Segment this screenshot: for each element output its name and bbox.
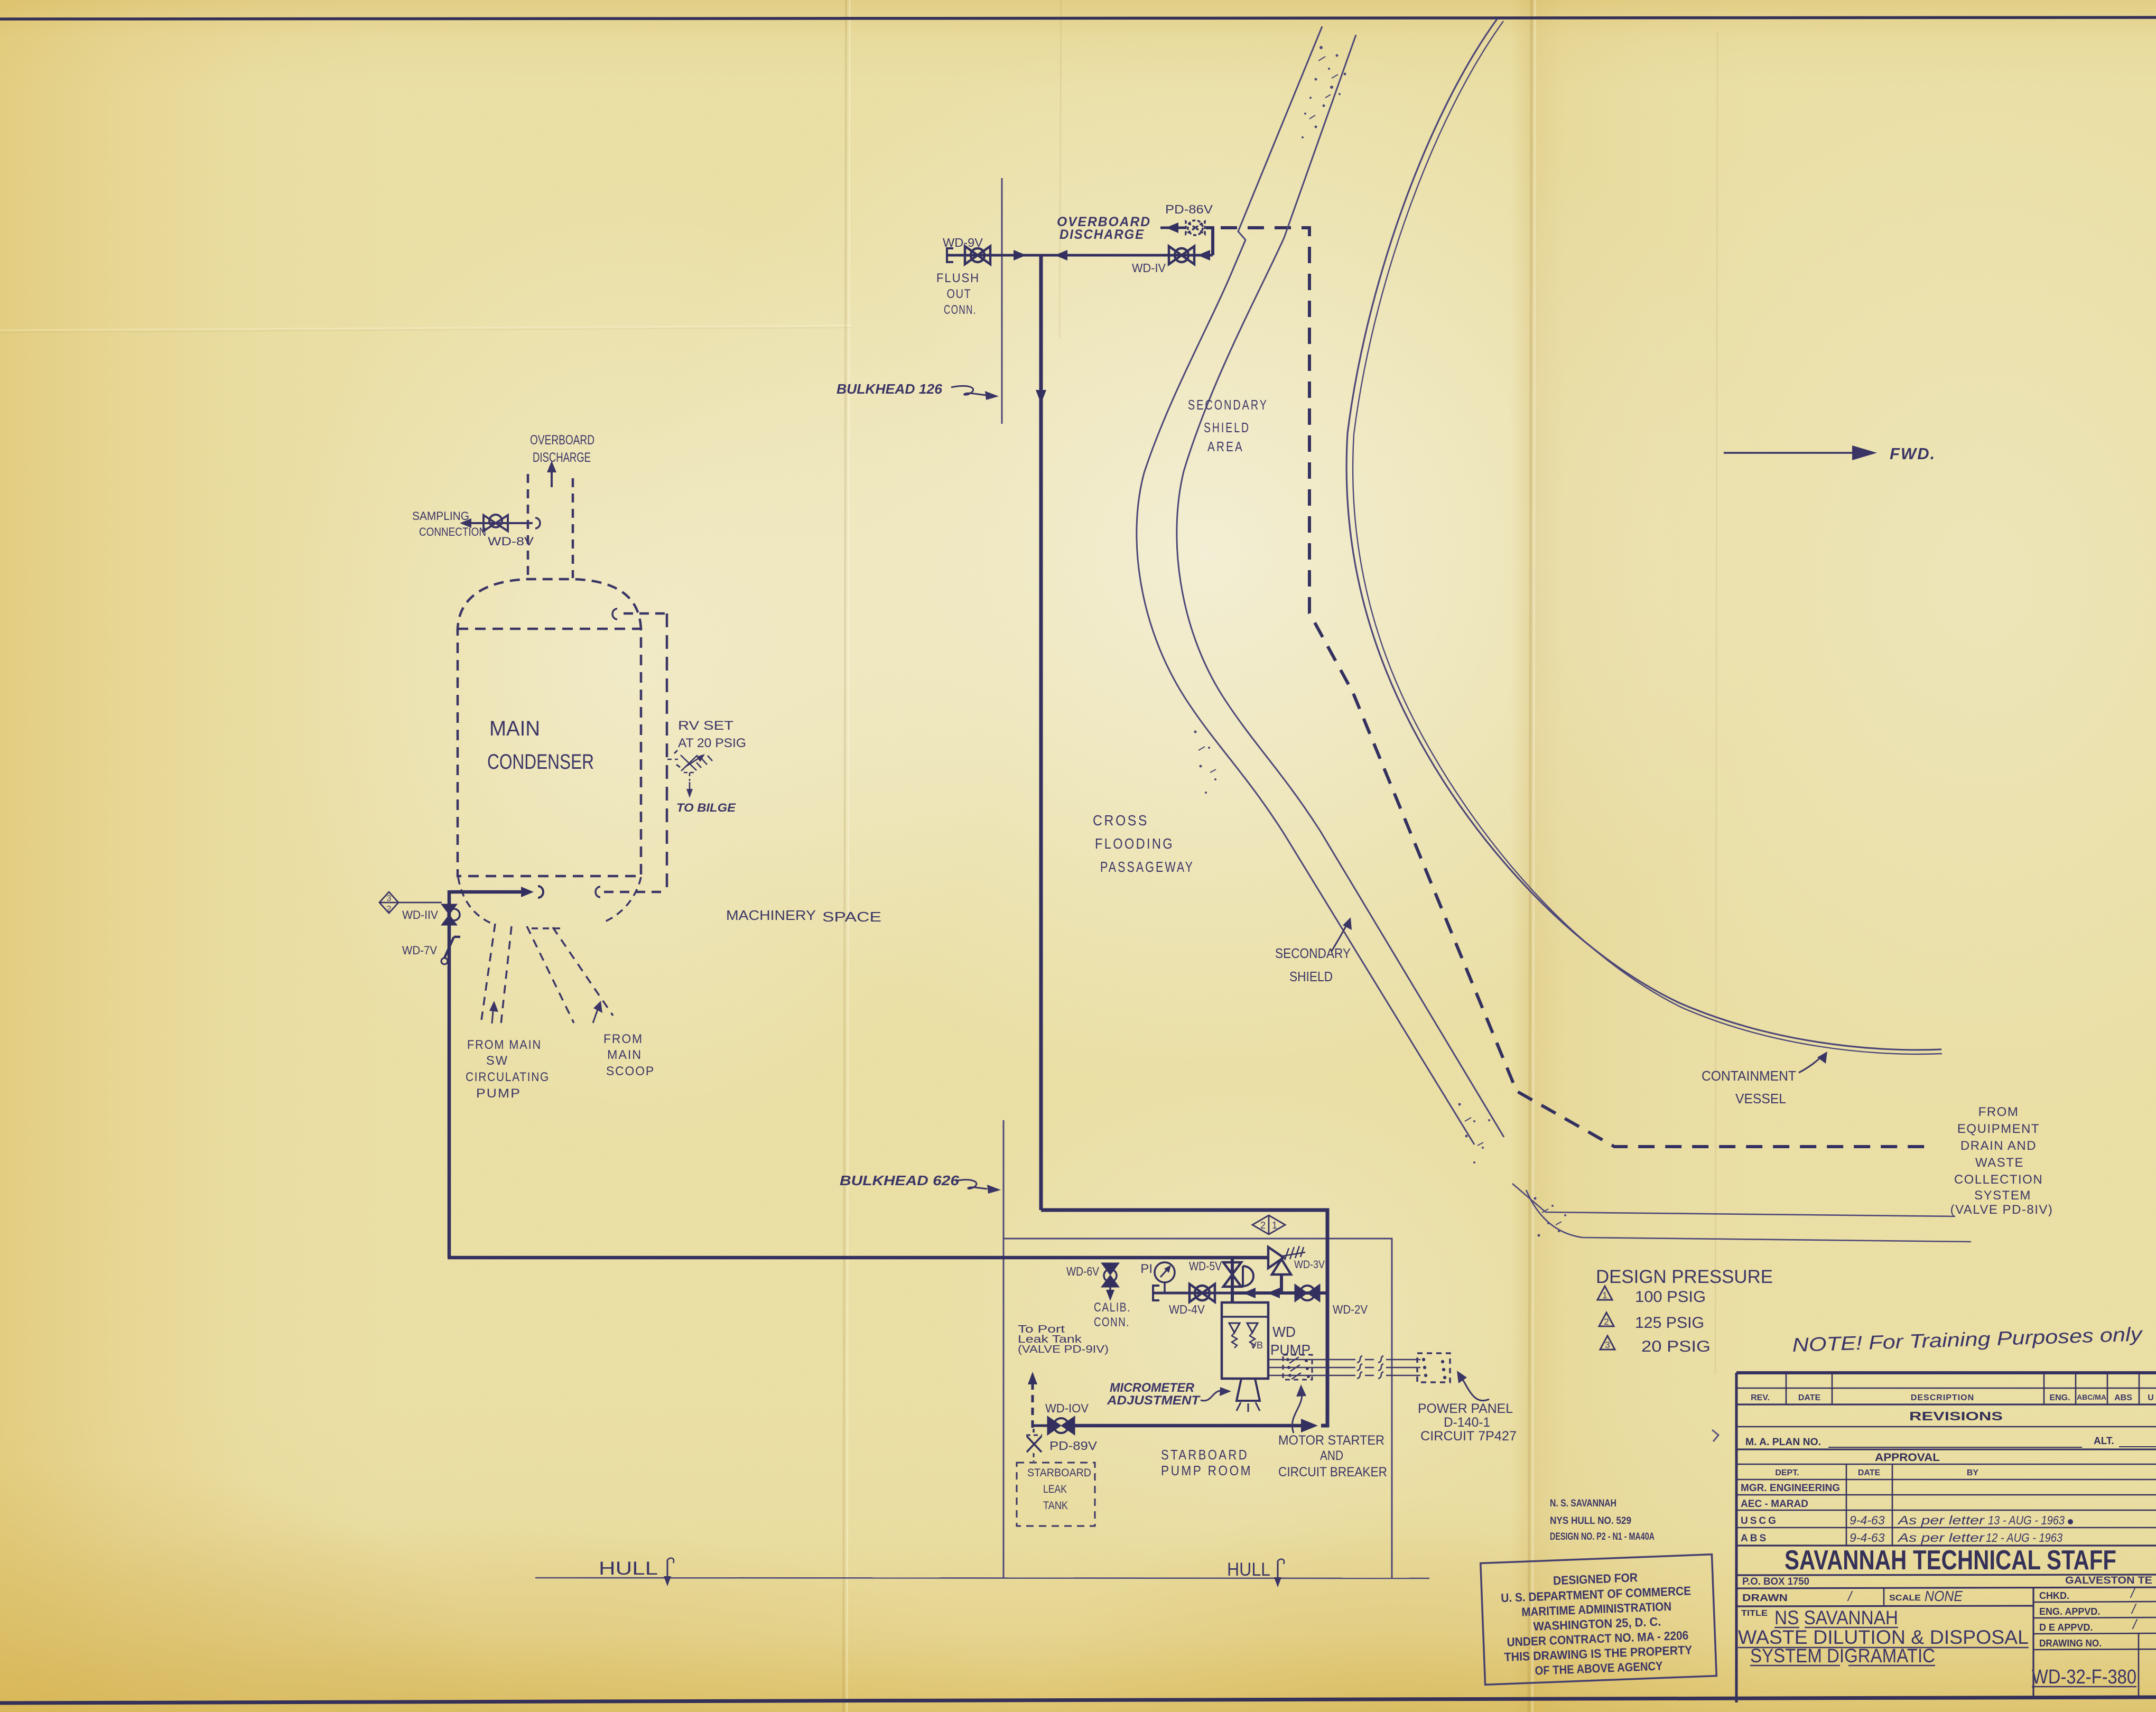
- svg-text:(VALVE PD-8IV): (VALVE PD-8IV): [1950, 1203, 2053, 1217]
- svg-text:WD-7V: WD-7V: [402, 944, 437, 957]
- svg-text:SCOOP: SCOOP: [606, 1064, 655, 1078]
- svg-text:PD-89V: PD-89V: [1049, 1439, 1098, 1453]
- svg-text:WD: WD: [1272, 1324, 1296, 1340]
- svg-text:2: 2: [1260, 1220, 1266, 1231]
- svg-text:CONN.: CONN.: [1094, 1315, 1130, 1329]
- svg-text:VB: VB: [1250, 1340, 1263, 1351]
- svg-text:OVERBOARD: OVERBOARD: [530, 433, 594, 448]
- svg-text:DESIGN PRESSURE: DESIGN PRESSURE: [1596, 1267, 1773, 1287]
- svg-text:CROSS: CROSS: [1093, 812, 1149, 829]
- svg-text:20 PSIG: 20 PSIG: [1641, 1338, 1711, 1355]
- svg-text:HULL: HULL: [599, 1558, 658, 1579]
- svg-text:MICROMETER: MICROMETER: [1110, 1381, 1195, 1395]
- svg-text:SCALE: SCALE: [1889, 1594, 1921, 1603]
- svg-text:SAVANNAH TECHNICAL STAFF: SAVANNAH TECHNICAL STAFF: [1785, 1545, 2116, 1576]
- svg-text:MGR. ENGINEERING: MGR. ENGINEERING: [1741, 1483, 1840, 1494]
- svg-text:D-140-1: D-140-1: [1444, 1415, 1490, 1430]
- svg-text:ENG. APPVD.: ENG. APPVD.: [2039, 1606, 2100, 1617]
- svg-text:DESCRIPTION: DESCRIPTION: [1911, 1393, 1974, 1402]
- svg-text:ENG.: ENG.: [2049, 1393, 2070, 1402]
- svg-text:CONN.: CONN.: [944, 303, 977, 317]
- svg-text:PI: PI: [1140, 1262, 1153, 1276]
- svg-text:100 PSIG: 100 PSIG: [1635, 1288, 1706, 1306]
- svg-text:BULKHEAD 126: BULKHEAD 126: [837, 381, 943, 397]
- svg-text:WD-2V: WD-2V: [1333, 1302, 1368, 1316]
- svg-text:WD-32-F-380: WD-32-F-380: [2032, 1666, 2136, 1688]
- svg-text:COLLECTION: COLLECTION: [1954, 1173, 2043, 1187]
- svg-text:9-4-63: 9-4-63: [1850, 1513, 1885, 1527]
- svg-text:AT 20 PSIG: AT 20 PSIG: [678, 736, 746, 750]
- svg-text:SHIELD: SHIELD: [1204, 420, 1250, 435]
- svg-text:SECONDARY: SECONDARY: [1275, 945, 1351, 961]
- svg-text:As per letter: As per letter: [1897, 1531, 1985, 1544]
- svg-text:ABS: ABS: [2114, 1393, 2132, 1402]
- svg-text:POWER PANEL: POWER PANEL: [1418, 1401, 1513, 1416]
- svg-text:12 - AUG - 1963: 12 - AUG - 1963: [1986, 1531, 2062, 1544]
- svg-text:FROM MAIN: FROM MAIN: [467, 1038, 542, 1052]
- svg-text:DATE: DATE: [1858, 1468, 1881, 1477]
- svg-text:PD-86V: PD-86V: [1165, 202, 1213, 216]
- svg-text:APPROVAL: APPROVAL: [1875, 1452, 1940, 1464]
- svg-text:CONNECTION: CONNECTION: [419, 525, 486, 538]
- svg-text:DISCHARGE: DISCHARGE: [1060, 227, 1145, 242]
- svg-text:AREA: AREA: [1207, 439, 1244, 454]
- svg-text:2: 2: [387, 905, 392, 914]
- svg-text:WD-8V: WD-8V: [488, 535, 534, 548]
- svg-text:MOTOR STARTER: MOTOR STARTER: [1278, 1433, 1384, 1448]
- svg-text:DRAWN: DRAWN: [1742, 1593, 1788, 1603]
- svg-text:FROM: FROM: [1978, 1105, 2019, 1119]
- svg-text:TITLE: TITLE: [1741, 1609, 1768, 1618]
- svg-text:DEPT.: DEPT.: [1775, 1468, 1799, 1477]
- svg-text:CALIB.: CALIB.: [1094, 1300, 1131, 1315]
- svg-text:FLOODING: FLOODING: [1095, 835, 1174, 852]
- svg-text:CHKD.: CHKD.: [2039, 1590, 2069, 1601]
- svg-text:VESSEL: VESSEL: [1735, 1091, 1786, 1106]
- svg-text:CONTAINMENT: CONTAINMENT: [1702, 1068, 1796, 1084]
- svg-text:TO BILGE: TO BILGE: [676, 801, 736, 814]
- svg-text:3: 3: [1605, 1340, 1610, 1350]
- svg-text:REVISIONS: REVISIONS: [1909, 1409, 2003, 1423]
- svg-text:WD-4V: WD-4V: [1169, 1302, 1205, 1316]
- svg-text:WD-IOV: WD-IOV: [1045, 1401, 1089, 1415]
- svg-text:ALT.: ALT.: [2094, 1436, 2114, 1447]
- svg-text:MAIN: MAIN: [489, 717, 540, 740]
- svg-text:FWD.: FWD.: [1890, 444, 1936, 463]
- svg-text:1: 1: [1272, 1220, 1277, 1231]
- svg-text:CONDENSER: CONDENSER: [487, 750, 594, 774]
- svg-text:ADJUSTMENT: ADJUSTMENT: [1107, 1393, 1201, 1408]
- svg-text:BULKHEAD 626: BULKHEAD 626: [840, 1173, 960, 1188]
- svg-text:PUMP: PUMP: [476, 1086, 521, 1101]
- svg-text:RV SET: RV SET: [678, 719, 733, 733]
- svg-text:GALVESTON TE: GALVESTON TE: [2065, 1575, 2152, 1586]
- svg-text:MACHINERY: MACHINERY: [726, 907, 816, 923]
- svg-text:PUMP ROOM: PUMP ROOM: [1161, 1463, 1252, 1478]
- svg-text:DRAWING NO.: DRAWING NO.: [2039, 1638, 2102, 1649]
- svg-text:ABS: ABS: [1741, 1533, 1768, 1544]
- svg-text:STARBOARD: STARBOARD: [1161, 1447, 1249, 1463]
- svg-text:FLUSH: FLUSH: [936, 271, 980, 285]
- svg-text:WD-IV: WD-IV: [1132, 261, 1166, 275]
- svg-text:FROM: FROM: [603, 1032, 643, 1046]
- svg-text:1: 1: [1602, 1290, 1607, 1300]
- svg-text:AND: AND: [1320, 1448, 1343, 1463]
- svg-text:As per letter: As per letter: [1897, 1513, 1985, 1527]
- svg-text:SECONDARY: SECONDARY: [1188, 397, 1268, 413]
- svg-text:BY: BY: [1967, 1468, 1979, 1477]
- svg-text:WD-6V: WD-6V: [1066, 1264, 1100, 1278]
- svg-text:SHIELD: SHIELD: [1289, 969, 1333, 984]
- svg-text:USCG: USCG: [1741, 1515, 1778, 1527]
- svg-text:N. S. SAVANNAH: N. S. SAVANNAH: [1550, 1498, 1616, 1509]
- svg-text:CIRCULATING: CIRCULATING: [466, 1070, 550, 1084]
- svg-text:WD-IIV: WD-IIV: [402, 908, 438, 922]
- svg-text:(VALVE PD-9IV): (VALVE PD-9IV): [1018, 1344, 1109, 1355]
- svg-text:DISCHARGE: DISCHARGE: [533, 450, 591, 465]
- svg-text:NS SAVANNAH: NS SAVANNAH: [1774, 1607, 1898, 1629]
- svg-text:AEC - MARAD: AEC - MARAD: [1741, 1499, 1808, 1510]
- svg-text:EQUIPMENT: EQUIPMENT: [1957, 1122, 2040, 1136]
- svg-text:NONE: NONE: [1925, 1588, 1963, 1604]
- svg-text:D E APPVD.: D E APPVD.: [2039, 1622, 2093, 1633]
- svg-text:DRAIN AND: DRAIN AND: [1960, 1139, 2037, 1153]
- svg-text:MAIN: MAIN: [607, 1048, 642, 1062]
- svg-text:CIRCUIT 7P427: CIRCUIT 7P427: [1420, 1429, 1517, 1444]
- svg-text:TANK: TANK: [1043, 1500, 1068, 1512]
- svg-text:SYSTEM: SYSTEM: [1974, 1188, 2031, 1203]
- svg-text:WD-3V: WD-3V: [1294, 1259, 1325, 1271]
- svg-text:U: U: [2148, 1393, 2154, 1402]
- svg-text:SYSTEM DIGRAMATIC: SYSTEM DIGRAMATIC: [1750, 1645, 1935, 1667]
- svg-text:STARBOARD: STARBOARD: [1027, 1467, 1091, 1479]
- svg-text:WD-9V: WD-9V: [943, 236, 983, 249]
- svg-text:P.O. BOX 1750: P.O. BOX 1750: [1742, 1576, 1809, 1587]
- svg-text:HULL: HULL: [1227, 1559, 1270, 1580]
- svg-text:9-4-63: 9-4-63: [1850, 1531, 1885, 1544]
- svg-text:SAMPLING: SAMPLING: [412, 509, 469, 523]
- svg-text:DATE: DATE: [1798, 1393, 1821, 1402]
- svg-text:PASSAGEWAY: PASSAGEWAY: [1100, 859, 1194, 875]
- svg-text:2: 2: [1604, 1317, 1609, 1327]
- svg-text:SW: SW: [486, 1054, 508, 1068]
- svg-text:CIRCUIT BREAKER: CIRCUIT BREAKER: [1278, 1465, 1387, 1480]
- svg-text:M. A. PLAN NO.: M. A. PLAN NO.: [1745, 1437, 1821, 1448]
- svg-text:LEAK: LEAK: [1043, 1483, 1067, 1495]
- svg-text:SPACE: SPACE: [822, 909, 881, 925]
- svg-text:ABC/MA: ABC/MA: [2077, 1393, 2106, 1401]
- svg-text:13 - AUG - 1963: 13 - AUG - 1963: [1988, 1513, 2065, 1527]
- svg-text:NYS HULL NO. 529: NYS HULL NO. 529: [1550, 1515, 1631, 1527]
- svg-text:REV.: REV.: [1751, 1393, 1770, 1402]
- svg-text:125 PSIG: 125 PSIG: [1635, 1314, 1704, 1332]
- svg-text:WASTE: WASTE: [1975, 1156, 2024, 1170]
- svg-text:3: 3: [387, 894, 392, 903]
- svg-text:WD-5V: WD-5V: [1189, 1259, 1222, 1273]
- svg-text:OUT: OUT: [947, 287, 972, 301]
- svg-text:DESIGN NO. P2 - N1 - MA40A: DESIGN NO. P2 - N1 - MA40A: [1550, 1531, 1655, 1542]
